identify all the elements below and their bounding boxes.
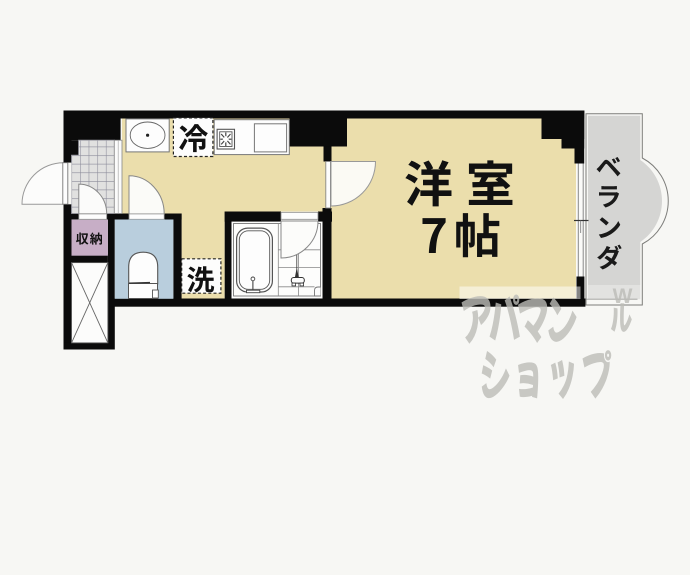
svg-text:W: W <box>613 285 633 308</box>
